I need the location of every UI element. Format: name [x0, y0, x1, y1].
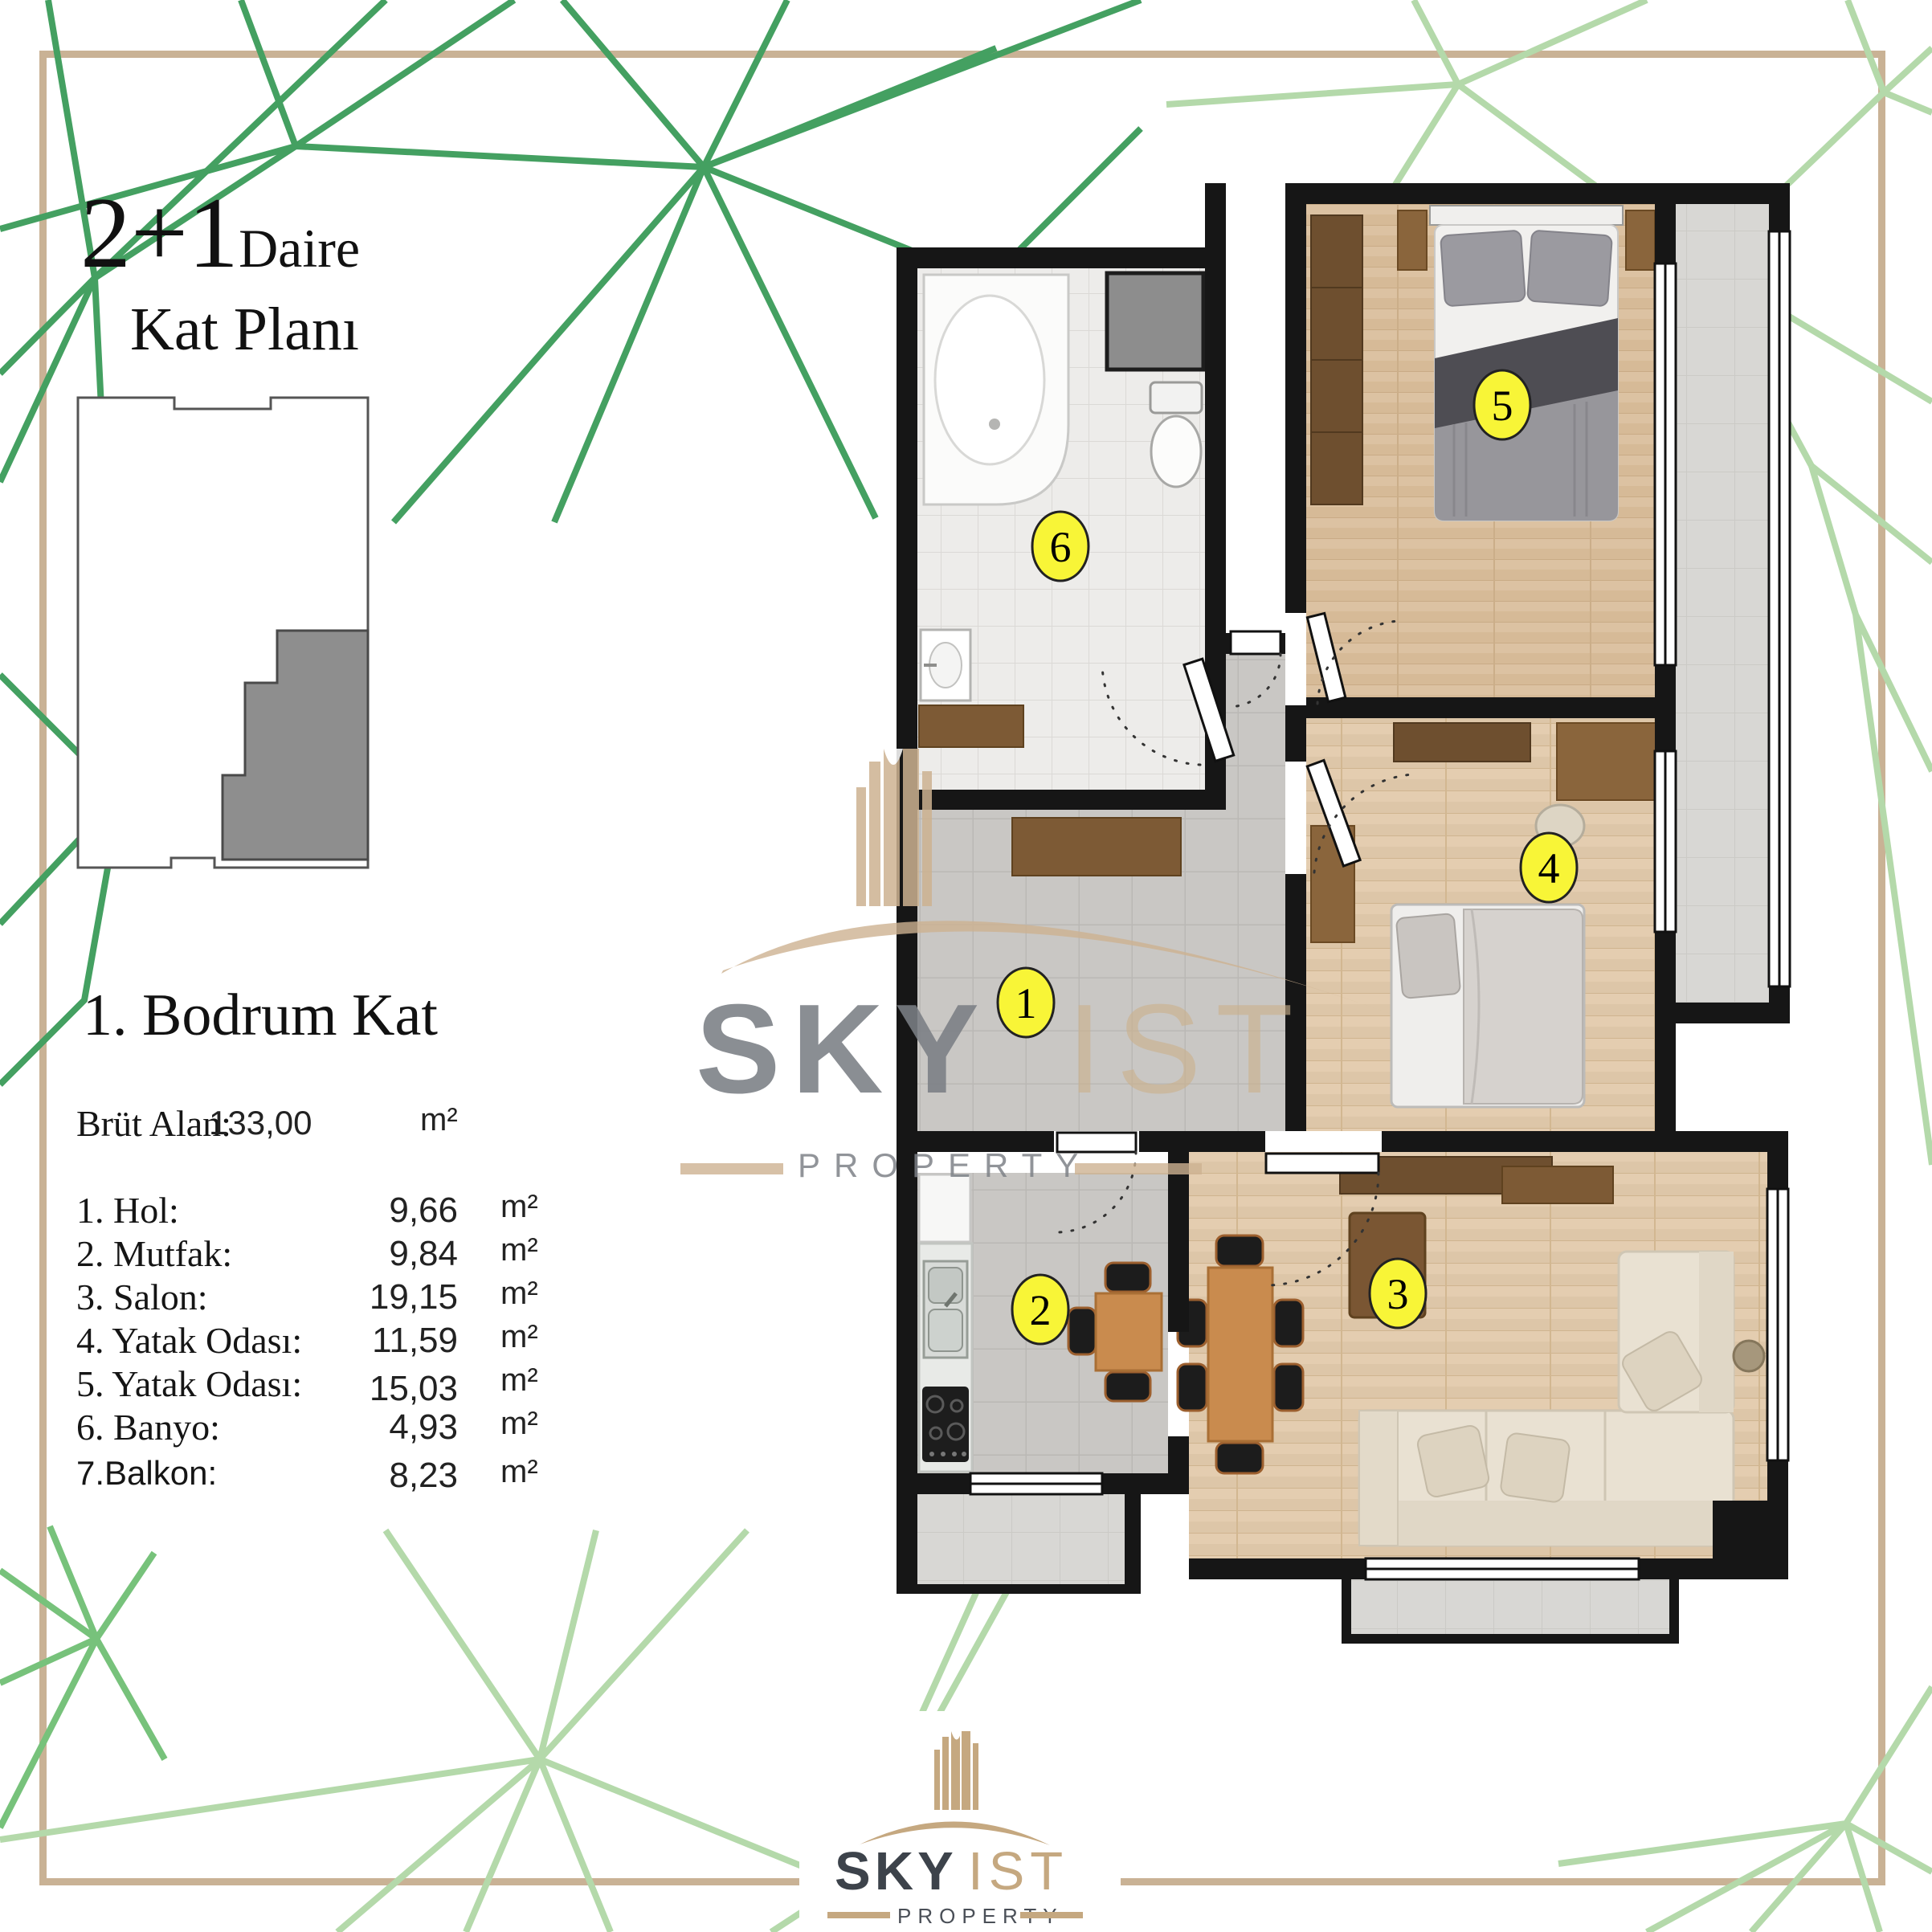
- floor-heading: 1. Bodrum Kat: [83, 982, 438, 1050]
- area-row-yatak5: 5. Yatak Odası: 15,03 m²: [76, 1362, 478, 1404]
- room-label: 1. Hol:: [76, 1189, 179, 1231]
- room-label-bathroom: 6: [1032, 512, 1089, 581]
- brand-watermark: SKY IST PROPERTY: [667, 739, 1566, 1205]
- gross-area-value: 133,00: [209, 1104, 390, 1142]
- key-plan-diagram: [48, 378, 386, 900]
- room-label: 6. Banyo:: [76, 1406, 220, 1448]
- brand-logo: SKY IST PROPERTY: [799, 1711, 1121, 1932]
- side-table: [1734, 1341, 1764, 1371]
- watermark-right-rule: [1075, 1163, 1202, 1174]
- nightstand-right: [1626, 210, 1655, 270]
- room-value: 9,66: [285, 1191, 458, 1231]
- room-unit: m²: [500, 1189, 538, 1225]
- watermark-sky: SKY: [696, 978, 991, 1120]
- room-value: 11,59: [285, 1321, 458, 1361]
- window-salon-bottom: [1366, 1558, 1639, 1579]
- kitchen-sink: [924, 1261, 967, 1358]
- window-balcony-glazing: [1769, 231, 1790, 986]
- room-label-salon: 3: [1370, 1259, 1426, 1328]
- double-bed: [1398, 206, 1655, 521]
- toilet: [1150, 382, 1202, 487]
- window-bedroom5: [1655, 263, 1676, 665]
- logo-sky: SKY: [835, 1841, 958, 1901]
- logo-right-rule: [1020, 1912, 1083, 1918]
- gross-area-row: Brüt Alan: 133,00 m²: [76, 1102, 478, 1144]
- watermark-property: PROPERTY: [798, 1146, 1092, 1184]
- logo-ist: IST: [968, 1841, 1068, 1901]
- title-apartment-word: Daire: [239, 221, 360, 276]
- room-label: 5. Yatak Odası:: [76, 1362, 302, 1405]
- watermark-building-icon: [856, 749, 932, 906]
- room-value: 4,93: [285, 1407, 458, 1448]
- room-unit: m²: [500, 1406, 538, 1442]
- room-value: 15,03: [285, 1369, 458, 1409]
- logo-left-rule: [827, 1912, 890, 1918]
- svg-text:5: 5: [1492, 382, 1513, 430]
- area-row-balkon: 7.Balkon: 8,23 m²: [76, 1454, 478, 1496]
- area-row-yatak4: 4. Yatak Odası: 11,59 m²: [76, 1319, 478, 1361]
- gross-area-unit: m²: [420, 1102, 458, 1138]
- bathtub: [924, 275, 1068, 504]
- room-unit: m²: [500, 1362, 538, 1399]
- room-value: 8,23: [285, 1456, 458, 1496]
- svg-text:2: 2: [1030, 1286, 1052, 1334]
- area-row-hol: 1. Hol: 9,66 m²: [76, 1189, 478, 1231]
- area-row-banyo: 6. Banyo: 4,93 m²: [76, 1406, 478, 1448]
- room-label: 7.Balkon:: [76, 1454, 217, 1493]
- room-value: 19,15: [285, 1277, 458, 1317]
- gross-area-label: Brüt Alan:: [76, 1102, 231, 1145]
- balcony-floor-kitchen: [917, 1494, 1125, 1584]
- room-unit: m²: [500, 1319, 538, 1355]
- area-row-mutfak: 2. Mutfak: 9,84 m²: [76, 1232, 478, 1274]
- title-apartment-type: 2+1: [80, 183, 239, 284]
- room-label-kitchen: 2: [1012, 1275, 1068, 1344]
- window-salon-right: [1767, 1189, 1788, 1460]
- watermark-ist: IST: [1067, 978, 1308, 1120]
- window-kitchen: [970, 1473, 1102, 1494]
- room-unit: m²: [500, 1276, 538, 1312]
- area-row-salon: 3. Salon: 19,15 m²: [76, 1276, 478, 1317]
- bathroom-sink: [921, 630, 970, 701]
- plan-title: 2+1 Daire Kat Planı: [80, 183, 418, 360]
- nightstand-left: [1398, 210, 1427, 270]
- svg-text:6: 6: [1050, 523, 1072, 571]
- room-label: 4. Yatak Odası:: [76, 1319, 302, 1362]
- balcony-floor-salon: [1350, 1579, 1671, 1634]
- balcony-floor-right: [1676, 204, 1769, 1003]
- svg-text:3: 3: [1387, 1270, 1409, 1318]
- shower-unit: [1107, 273, 1203, 370]
- flyer-page: 2+1 Daire Kat Planı 1. Bodrum Kat Brüt A…: [0, 0, 1932, 1932]
- room-label: 3. Salon:: [76, 1276, 208, 1318]
- room-unit: m²: [500, 1454, 538, 1490]
- room-label-bedroom5: 5: [1474, 370, 1530, 439]
- window-bedroom4: [1655, 751, 1676, 932]
- watermark-left-rule: [680, 1163, 783, 1174]
- cooktop: [922, 1387, 969, 1462]
- room-value: 9,84: [285, 1234, 458, 1274]
- room-unit: m²: [500, 1232, 538, 1268]
- room-label: 2. Mutfak:: [76, 1232, 232, 1275]
- title-subtitle: Kat Planı: [130, 299, 418, 360]
